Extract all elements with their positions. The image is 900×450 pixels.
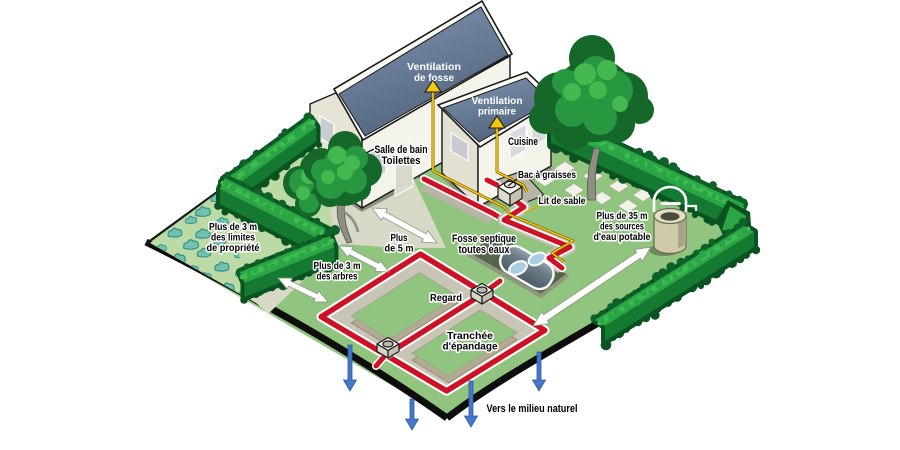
svg-text:de fosse: de fosse	[414, 72, 454, 84]
svg-text:Toilettes: Toilettes	[382, 155, 421, 167]
svg-text:Lit de sable: Lit de sable	[539, 195, 586, 207]
svg-text:primaire: primaire	[478, 106, 516, 118]
svg-text:toutes eaux: toutes eaux	[459, 244, 511, 256]
svg-text:Bac à graisses: Bac à graisses	[518, 169, 576, 181]
svg-text:de 5 m: de 5 m	[385, 243, 414, 255]
svg-text:de propriété: de propriété	[207, 242, 260, 254]
svg-text:d'eau potable: d'eau potable	[594, 231, 651, 243]
svg-text:Regard: Regard	[430, 292, 462, 304]
svg-text:Vers le milieu naturel: Vers le milieu naturel	[487, 403, 578, 415]
svg-text:d'épandage: d'épandage	[443, 341, 498, 353]
svg-text:des arbres: des arbres	[317, 271, 358, 283]
svg-text:Cuisine: Cuisine	[508, 136, 538, 148]
